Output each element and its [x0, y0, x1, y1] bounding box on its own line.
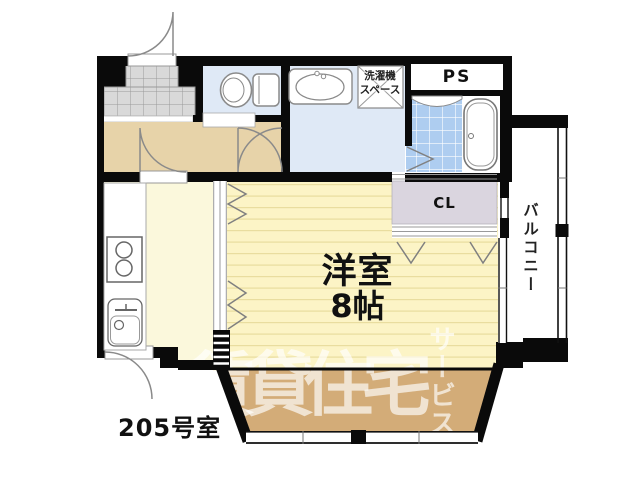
closet-label: CL: [392, 181, 497, 224]
window-right-lower: [498, 238, 507, 343]
service-balcony-railing: [246, 430, 478, 444]
washer-space-label-line2: スペース: [353, 84, 407, 98]
wall-left: [97, 56, 104, 358]
wall-diagonal-right: [477, 364, 499, 441]
wall-diagonal-left: [220, 364, 248, 441]
washbasin-fixture: [289, 69, 352, 104]
balcony-label: バルコニー: [519, 202, 541, 295]
wall-layer: [0, 0, 640, 480]
closet-door-chevron-right: [470, 242, 497, 263]
stove-burner-2: [116, 260, 132, 276]
unit-number-label: 205号室: [118, 408, 221, 443]
stove-burner-1: [116, 242, 132, 258]
balcony-railing: [556, 128, 569, 343]
kitchen-sink: [108, 299, 142, 346]
washer-space-label: 洗濯機 スペース: [353, 70, 407, 97]
window-right-upper: [500, 198, 509, 218]
bath-folding-door-chevron: [407, 147, 433, 171]
toilet-door-sill: [203, 113, 255, 127]
sliding-door-chevron-upper: [228, 184, 246, 224]
wall-bath-right: [500, 90, 512, 182]
western-room-size: 8帖: [275, 281, 440, 327]
sliding-door-chevron-lower: [228, 281, 246, 329]
toilet-washroom-doors: [238, 128, 282, 172]
entrance-door: [128, 12, 173, 56]
shower-ledge: [412, 96, 462, 107]
wall-balcony-bottom: [523, 338, 568, 362]
partition-track: [213, 181, 227, 330]
kitchen-counter: [104, 183, 146, 350]
washer-space-label-line1: 洗濯機: [353, 70, 407, 84]
wall-right-seg1: [500, 182, 509, 198]
toilet-fixture: [221, 73, 280, 107]
kitchen-hall-door: [140, 128, 186, 172]
bathtub-fixture: [464, 99, 497, 170]
wall-right-post: [500, 218, 509, 238]
pipe-space-label: PS: [411, 63, 503, 90]
wall-right-connector: [496, 342, 523, 368]
sink-faucet: [115, 321, 124, 330]
wall-balcony-top: [500, 115, 568, 128]
floorplan-canvas: 賃貸住宅 サービス: [0, 0, 640, 480]
kitchen-door-sill: [140, 171, 187, 183]
wall-kitchen-step: [160, 347, 178, 368]
